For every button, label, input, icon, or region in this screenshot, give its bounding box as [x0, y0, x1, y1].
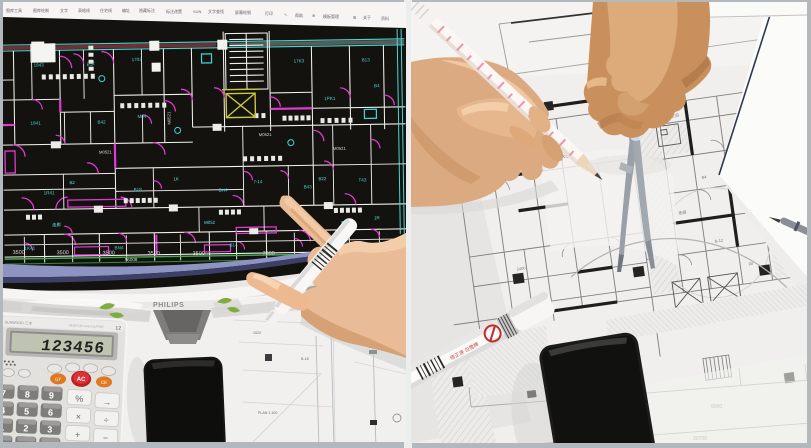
svg-text:编址: 编址 [122, 7, 130, 13]
svg-text:GT: GT [55, 377, 62, 382]
svg-text:隐藏标注: 隐藏标注 [139, 7, 155, 13]
svg-text:B2: B2 [69, 180, 75, 185]
svg-text:56008: 56008 [125, 257, 138, 262]
svg-text:文字查找: 文字查找 [208, 8, 224, 14]
svg-text:7000: 7000 [263, 251, 275, 257]
svg-text:123456: 123456 [40, 337, 107, 358]
svg-text:0: 0 [3, 439, 4, 442]
svg-text:×: × [76, 412, 82, 422]
svg-text:1K: 1K [173, 176, 179, 181]
svg-text:B22: B22 [318, 176, 326, 181]
svg-text:∿: ∿ [284, 12, 287, 17]
svg-text:1841: 1841 [30, 121, 41, 126]
svg-text:表格线: 表格线 [78, 7, 90, 13]
svg-text:9: 9 [49, 390, 54, 400]
svg-text:17K3: 17K3 [294, 58, 305, 63]
svg-text:−: − [103, 433, 109, 442]
svg-text:7-14: 7-14 [253, 179, 262, 184]
svg-text:模板管理: 模板管理 [323, 13, 339, 19]
svg-text:1843: 1843 [34, 62, 45, 67]
svg-text:B43: B43 [304, 184, 313, 189]
svg-text:走廊: 走廊 [678, 208, 687, 215]
svg-text:M052: M052 [204, 220, 216, 225]
svg-text:÷: ÷ [104, 415, 109, 425]
svg-text:CE: CE [101, 380, 107, 385]
svg-text:文字: 文字 [60, 7, 68, 13]
svg-text:12: 12 [115, 325, 121, 331]
svg-text:7: 7 [3, 388, 6, 398]
svg-text:3: 3 [47, 424, 52, 434]
svg-text:B-18: B-18 [301, 357, 309, 361]
svg-text:8: 8 [25, 389, 30, 399]
svg-text:B4: B4 [374, 83, 380, 88]
svg-text:PHILIPS: PHILIPS [153, 302, 184, 309]
svg-text:⊞: ⊞ [353, 15, 356, 20]
svg-text:00: 00 [20, 440, 30, 442]
svg-text:1PK1: 1PK1 [324, 96, 336, 101]
svg-text:图库工具: 图库工具 [6, 7, 22, 13]
svg-text:1R41: 1R41 [44, 190, 56, 195]
svg-text:标注改置: 标注改置 [166, 8, 182, 14]
svg-text:BN4: BN4 [114, 245, 123, 250]
svg-text:M0521: M0521 [259, 132, 273, 137]
svg-text:B42: B42 [97, 120, 106, 125]
svg-text:B1F: B1F [87, 62, 96, 67]
svg-text:帮助: 帮助 [295, 12, 303, 18]
svg-text:5: 5 [24, 406, 29, 416]
svg-text:SUN: SUN [193, 9, 202, 14]
svg-text:关于: 关于 [363, 14, 371, 20]
svg-text:→: → [102, 397, 111, 407]
svg-text:资料: 资料 [381, 15, 389, 21]
svg-text:T43: T43 [358, 177, 366, 182]
svg-text:M0521: M0521 [166, 111, 171, 125]
svg-text:6: 6 [48, 407, 53, 417]
svg-text:1520: 1520 [253, 331, 261, 335]
svg-text:图库绘制: 图库绘制 [33, 7, 49, 13]
svg-text:M04: M04 [137, 114, 146, 119]
svg-text:⊕: ⊕ [312, 13, 315, 18]
svg-text:1R: 1R [374, 215, 380, 220]
svg-text:3500: 3500 [193, 251, 205, 257]
svg-text:1K41: 1K41 [24, 246, 35, 251]
svg-text:AC: AC [77, 377, 87, 383]
svg-text:B13: B13 [362, 57, 371, 62]
svg-text:3500: 3500 [103, 250, 115, 256]
svg-text:B18: B18 [134, 187, 143, 192]
svg-text:+: + [75, 430, 81, 440]
svg-text:PLAN 1:100: PLAN 1:100 [258, 411, 277, 415]
svg-text:打印: 打印 [265, 10, 273, 16]
svg-text:B14: B14 [229, 242, 238, 247]
svg-text:住宅线: 住宅线 [100, 7, 112, 13]
svg-text:BH4: BH4 [219, 188, 228, 193]
svg-text:3500: 3500 [57, 250, 69, 256]
svg-text:屏幕绘钢: 屏幕绘钢 [235, 9, 251, 15]
svg-text:%: % [75, 394, 83, 404]
svg-text:3500: 3500 [148, 251, 160, 257]
svg-text:M0521: M0521 [333, 146, 347, 151]
svg-text:1703: 1703 [132, 57, 143, 62]
svg-text:3500: 3500 [13, 250, 25, 256]
svg-text:M0521: M0521 [99, 149, 113, 154]
svg-text:2: 2 [23, 423, 28, 433]
